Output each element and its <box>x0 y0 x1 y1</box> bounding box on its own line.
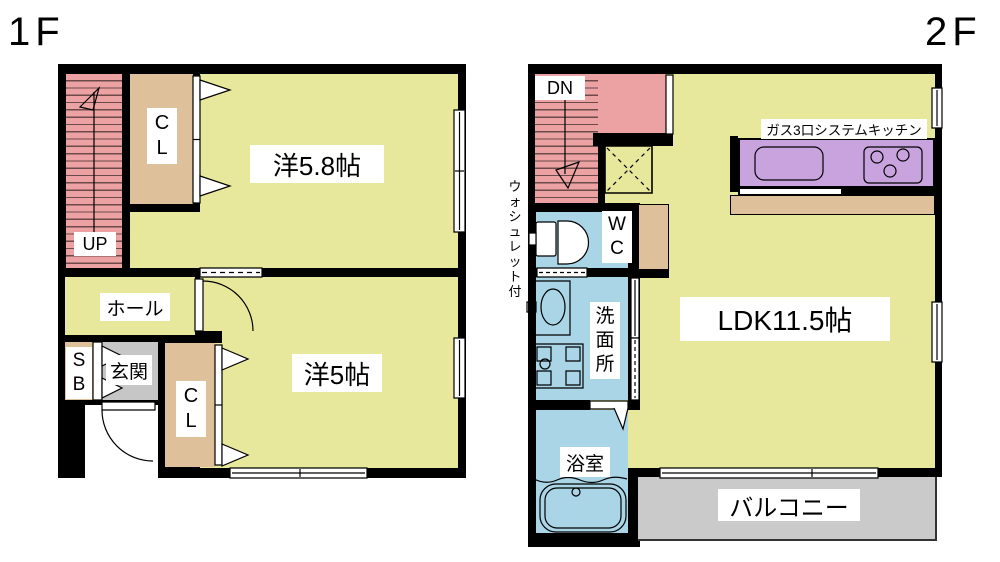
f2-stair-label: DN <box>535 76 585 100</box>
f1-closet-bottom-label: CL <box>176 381 206 437</box>
lineart-overlay <box>0 0 1000 562</box>
f2-bathroom-label: 浴室 <box>560 447 610 477</box>
f1-stair-label: UP <box>74 232 116 256</box>
closet-door <box>215 345 248 466</box>
floor2-title: 2F <box>925 10 982 55</box>
open-doorway <box>200 268 262 277</box>
stair-up-arrow <box>80 88 99 256</box>
f2-toilet-note-label: ウォシュレット付 <box>506 180 524 300</box>
open-doorway <box>666 75 673 134</box>
f1-hall-label: ホール <box>100 293 170 321</box>
f1-room-5-label: 洋5帖 <box>292 354 382 392</box>
floor-plan-canvas: 1F 2F UP CL CL SB ホール 玄関 洋5.8帖 洋5帖 DN WC… <box>0 0 1000 562</box>
bathroom-door <box>590 401 628 429</box>
f2-balcony-label: バルコニー <box>718 489 860 521</box>
front-door-arc <box>102 402 155 461</box>
kitchen-sink-icon <box>755 147 823 180</box>
wc-door <box>537 268 587 277</box>
washroom-door <box>631 278 639 400</box>
stove-burners-icon <box>864 147 922 183</box>
washbasin-icon <box>527 281 570 335</box>
f1-entrance-label: 玄関 <box>106 355 152 385</box>
washing-machine-pan-icon <box>535 344 583 388</box>
stair-down-arrow <box>556 96 579 188</box>
bathtub-icon <box>534 477 627 532</box>
closet-door <box>193 76 230 203</box>
floor1-title: 1F <box>8 10 65 55</box>
hatch-box <box>605 146 652 193</box>
hall-door-arc <box>195 279 253 331</box>
f2-toilet-label: WC <box>602 211 632 263</box>
f1-closet-top-label: CL <box>147 108 177 164</box>
f1-room-5-8-label: 洋5.8帖 <box>250 145 384 183</box>
f2-kitchen-label: ガス3口システムキッチン <box>761 119 927 139</box>
f1-shoebox-label: SB <box>66 347 92 399</box>
f2-washroom-label: 洗面所 <box>590 302 620 379</box>
toilet-icon <box>529 221 589 264</box>
f2-living-label: LDK11.5帖 <box>680 297 890 341</box>
